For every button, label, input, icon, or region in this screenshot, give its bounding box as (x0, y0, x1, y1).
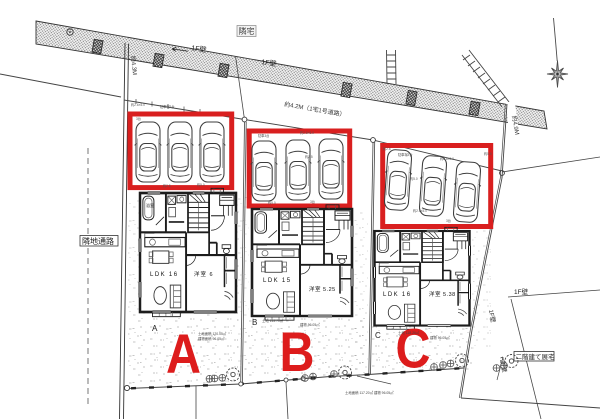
svg-text:土地面積 117.20㎡ 建物 96.05㎡: 土地面積 117.20㎡ 建物 96.05㎡ (345, 390, 394, 395)
svg-text:建物 96.05㎡: 建物 96.05㎡ (430, 335, 450, 340)
svg-text:浴室: 浴室 (146, 202, 154, 208)
svg-text:3台: 3台 (446, 218, 451, 223)
svg-text:約5.0: 約5.0 (197, 182, 205, 187)
svg-text:建物 96.05㎡: 建物 96.05㎡ (300, 322, 320, 327)
svg-text:約5.0: 約5.0 (268, 200, 276, 205)
svg-text:約2.5: 約2.5 (163, 183, 171, 188)
svg-text:約2.6: 約2.6 (383, 146, 391, 151)
svg-text:土地 118.26㎡: 土地 118.26㎡ (398, 330, 420, 335)
svg-text:A: A (166, 322, 201, 385)
svg-text:A: A (152, 324, 158, 333)
svg-text:LDK 16: LDK 16 (150, 272, 179, 278)
svg-text:二階建て展宅: 二階建て展宅 (516, 352, 556, 361)
svg-text:土地面積 120.05㎡: 土地面積 120.05㎡ (198, 331, 227, 336)
svg-text:駐車3台: 駐車3台 (258, 133, 269, 138)
svg-text:洋室 6: 洋室 6 (194, 270, 214, 278)
svg-text:約5.0: 約5.0 (484, 151, 492, 156)
svg-text:LDK 15: LDK 15 (263, 278, 292, 284)
svg-text:3台: 3台 (136, 116, 141, 121)
svg-text:C: C (375, 331, 381, 340)
svg-text:洋室 5.25: 洋室 5.25 (309, 285, 336, 293)
svg-text:約2.5×5.0: 約2.5×5.0 (413, 208, 427, 213)
svg-text:駐車場3台: 駐車場3台 (398, 152, 413, 157)
svg-text:B: B (280, 320, 315, 383)
svg-text:洋室 5.38: 洋室 5.38 (429, 290, 456, 298)
svg-text:土地 115.70㎡: 土地 115.70㎡ (262, 318, 284, 323)
svg-text:約2.5: 約2.5 (305, 154, 313, 159)
svg-text:隣地通路: 隣地通路 (82, 236, 114, 246)
svg-text:B: B (252, 318, 257, 327)
svg-text:駐車場3台: 駐車場3台 (160, 104, 175, 109)
svg-text:建物面積 96.05㎡: 建物面積 96.05㎡ (198, 336, 225, 341)
svg-text:C: C (396, 317, 431, 380)
svg-text:3台: 3台 (310, 199, 315, 204)
svg-text:約2.6×5.0: 約2.6×5.0 (440, 156, 454, 161)
svg-text:LDK 16: LDK 16 (383, 292, 412, 298)
svg-text:1F壁: 1F壁 (514, 287, 529, 296)
svg-text:約2.6×5.0: 約2.6×5.0 (131, 102, 145, 107)
svg-text:約2.6×5.0: 約2.6×5.0 (300, 130, 314, 135)
svg-text:隣宅: 隣宅 (239, 26, 255, 36)
svg-text:約5.0: 約5.0 (410, 176, 418, 181)
